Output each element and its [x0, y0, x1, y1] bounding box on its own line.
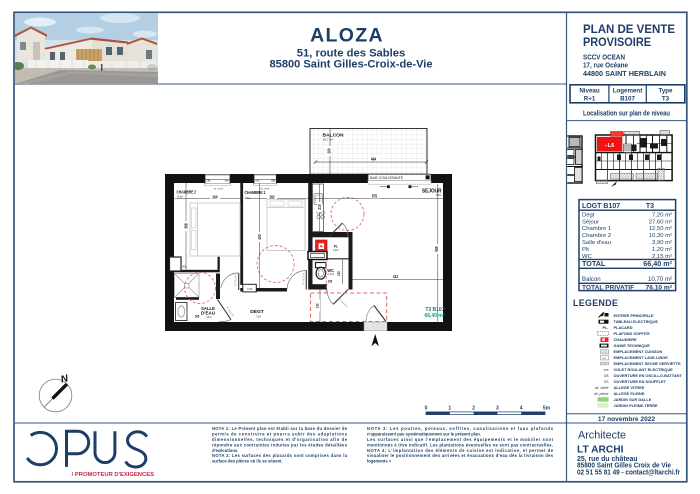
svg-text:JARDIN SUR DALLE: JARDIN SUR DALLE [614, 397, 652, 402]
svg-text:260: 260 [212, 194, 218, 199]
svg-text:66,40 m²: 66,40 m² [643, 259, 672, 268]
svg-text:156: 156 [328, 279, 333, 283]
svg-text:132: 132 [315, 303, 319, 308]
svg-text:EMPLACEMENT SECHE SERVIETTE: EMPLACEMENT SECHE SERVIETTE [614, 361, 682, 366]
svg-text:T3: T3 [662, 96, 670, 103]
svg-text:Chambre 2: Chambre 2 [582, 233, 611, 239]
svg-text:ALOZA: ALOZA [310, 25, 384, 47]
svg-text:/ PROMOTEUR D'EXIGENCES: / PROMOTEUR D'EXIGENCES [72, 472, 155, 478]
svg-text:Type: Type [659, 88, 674, 95]
svg-text:282: 282 [269, 194, 275, 199]
svg-text:all. vitrée: all. vitrée [214, 186, 224, 190]
svg-text:Localisation sur plan de nivea: Localisation sur plan de niveau [583, 108, 670, 117]
svg-text:vre: vre [225, 178, 229, 182]
svg-text:ALLEGE PLEINE: ALLEGE PLEINE [614, 391, 645, 396]
svg-text:NOTA 1: Le Présent plan est ét: NOTA 1: Le Présent plan est établi sur l… [212, 426, 348, 431]
svg-text:CHAMBRE 1: CHAMBRE 1 [245, 190, 266, 195]
svg-text:SCCV OCEAN: SCCV OCEAN [583, 55, 625, 62]
svg-text:Niveau: Niveau [579, 88, 600, 95]
svg-text:T3 B107: T3 B107 [425, 307, 444, 313]
svg-text:10,7 m²: 10,7 m² [323, 138, 334, 142]
svg-text:LEGENDE: LEGENDE [573, 298, 618, 308]
svg-text:VOLET ROULANT ELECTRIQUE: VOLET ROULANT ELECTRIQUE [614, 367, 674, 372]
svg-text:135: 135 [337, 271, 341, 276]
svg-text:12,5m²: 12,5m² [245, 196, 251, 200]
svg-text:185: 185 [195, 315, 200, 319]
svg-text:450: 450 [257, 234, 262, 240]
svg-text:17 novembre 2022: 17 novembre 2022 [598, 416, 656, 423]
svg-text:CVB: CVB [247, 287, 253, 291]
svg-text:3,90 m²: 3,90 m² [652, 240, 672, 246]
svg-text:n'apparaissent pas systématiqu: n'apparaissent pas systématiquement sur … [367, 431, 481, 436]
svg-text:10,3m²: 10,3m² [177, 195, 183, 199]
svg-text:OB: OB [604, 374, 610, 378]
svg-text:PP 80/204: PP 80/204 [302, 272, 306, 285]
svg-text:logements »: logements » [367, 459, 392, 464]
svg-text:vre: vre [604, 368, 609, 372]
svg-text:51, route des Sables: 51, route des Sables [297, 47, 406, 59]
svg-text:3: 3 [496, 406, 499, 412]
svg-text:Chambre 1: Chambre 1 [582, 226, 611, 232]
svg-text:LT ARCHI: LT ARCHI [577, 445, 624, 456]
svg-text:368: 368 [183, 223, 188, 229]
svg-text:Dégt: Dégt [582, 212, 595, 218]
svg-text:⌐L6: ⌐L6 [605, 143, 614, 149]
svg-text:10,30 m²: 10,30 m² [649, 233, 672, 239]
svg-text:10,70 m²: 10,70 m² [648, 276, 672, 283]
svg-text:3,9m²: 3,9m² [206, 315, 211, 319]
svg-text:ALLEGE VITREE: ALLEGE VITREE [614, 385, 645, 390]
svg-text:R+1: R+1 [584, 96, 596, 103]
svg-text:Architecte: Architecte [578, 430, 626, 442]
svg-text:85800 Saint Gilles-Croix-de-Vi: 85800 Saint Gilles-Croix-de-Vie [270, 59, 433, 71]
svg-text:TABLEAU ELECTRIQUE: TABLEAU ELECTRIQUE [614, 319, 659, 324]
svg-text:27,60 m²: 27,60 m² [649, 219, 672, 225]
svg-text:OB: OB [271, 178, 275, 182]
svg-text:Séjour: Séjour [582, 219, 599, 225]
svg-text:LOGT B107: LOGT B107 [582, 203, 620, 210]
svg-text:4: 4 [520, 406, 523, 412]
svg-text:7,2m²: 7,2m² [256, 314, 261, 318]
svg-text:d'exécutions.: d'exécutions. [212, 448, 238, 453]
svg-text:494: 494 [371, 157, 377, 162]
svg-text:NOTA 4: L'implantation des: NOTA 4: L'implantation des éléments de c… [367, 448, 554, 453]
svg-text:OUVERTURE EN OSCILLO-BATTANT: OUVERTURE EN OSCILLO-BATTANT [614, 373, 683, 378]
svg-text:1: 1 [448, 406, 451, 412]
svg-text:EMPLACEMENT LAVE-LINGE: EMPLACEMENT LAVE-LINGE [614, 355, 669, 360]
svg-text:Les surfaces ainsi que l'e: Les surfaces ainsi que l'emplacement des… [367, 437, 554, 442]
svg-text:76,10 m²: 76,10 m² [646, 285, 673, 292]
svg-text:NOTA 2: Les surfaces des placa: NOTA 2: Les surfaces des placards sont c… [212, 453, 348, 458]
svg-text:OS: OS [604, 380, 610, 384]
svg-text:Logement: Logement [613, 88, 643, 95]
svg-text:visualiser le positionnement: visualiser le positionnement des arrivée… [367, 453, 554, 458]
svg-text:TOTAL: TOTAL [582, 259, 606, 268]
svg-text:permis de construire et po: permis de construire et pourra subir des… [212, 431, 348, 436]
svg-text:mentionnés à titre indicatif.: mentionnés à titre indicatif. Les planta… [367, 442, 553, 447]
svg-text:575: 575 [372, 194, 378, 199]
svg-text:PL.: PL. [183, 265, 188, 269]
svg-text:répondre aux contraintes indui: répondre aux contraintes induites par le… [212, 442, 348, 447]
svg-text:44800 SAINT HERBLAIN: 44800 SAINT HERBLAIN [583, 71, 666, 78]
svg-text:PP 90/204: PP 90/204 [233, 273, 237, 286]
svg-text:GAINE TECHNIQUE: GAINE TECHNIQUE [614, 343, 651, 348]
svg-text:all. pleine: all. pleine [594, 392, 608, 396]
svg-text:Salle d'eau: Salle d'eau [582, 240, 611, 246]
svg-text:all. vitrée: all. vitrée [595, 386, 609, 390]
svg-text:NOTA 3: Les poutres, potea: NOTA 3: Les poutres, poteaux, soffites, … [367, 426, 554, 431]
svg-text:LL: LL [603, 356, 607, 360]
svg-text:dimensionnelles, techniques: dimensionnelles, techniques et d'organis… [212, 437, 348, 442]
svg-text:CHAUDIERE: CHAUDIERE [614, 337, 638, 342]
svg-text:Balcon: Balcon [582, 276, 601, 283]
svg-text:5m: 5m [543, 406, 551, 412]
svg-text:413: 413 [393, 274, 399, 279]
svg-text:17, rue Océane: 17, rue Océane [583, 63, 628, 70]
svg-text:2,1m²: 2,1m² [327, 272, 334, 276]
svg-text:66,40 m²: 66,40 m² [424, 313, 444, 319]
svg-text:OUVERTURE EN SOUFFLET: OUVERTURE EN SOUFFLET [614, 379, 667, 384]
svg-text:02 51 55 81 49 - contact@ltarc: 02 51 55 81 49 - contact@ltarchi.fr [577, 469, 680, 476]
svg-text:BAIE COULISSANTE: BAIE COULISSANTE [370, 176, 404, 180]
svg-text:1,20 m²: 1,20 m² [652, 247, 672, 253]
svg-text:PLAN DE VENTE: PLAN DE VENTE [583, 22, 675, 36]
svg-text:2: 2 [472, 406, 475, 412]
svg-text:260: 260 [326, 148, 331, 154]
svg-text:PLACARD: PLACARD [614, 325, 633, 330]
svg-text:TOTAL PRIVATIF: TOTAL PRIVATIF [582, 285, 634, 292]
svg-text:PROVISOIRE: PROVISOIRE [583, 35, 651, 49]
svg-text:12,50 m²: 12,50 m² [649, 226, 672, 232]
svg-text:27,6m²: 27,6m² [436, 193, 442, 197]
svg-text:0: 0 [425, 406, 428, 412]
svg-text:T3: T3 [646, 203, 654, 210]
svg-text:PLAFOND SOFFITE: PLAFOND SOFFITE [614, 331, 651, 336]
svg-text:JARDIN PLEINE-TERRE: JARDIN PLEINE-TERRE [614, 403, 659, 408]
svg-text:Plt: Plt [582, 247, 589, 253]
svg-text:ENTREE PRINCIPALE: ENTREE PRINCIPALE [614, 313, 655, 318]
svg-text:B107: B107 [620, 96, 635, 103]
svg-text:1,2m²: 1,2m² [333, 248, 339, 252]
svg-text:vre: vre [255, 178, 259, 182]
svg-text:surface des pièces où ils se s: surface des pièces où ils se situent. [212, 459, 283, 464]
svg-text:7,20 m²: 7,20 m² [652, 212, 672, 218]
svg-text:585: 585 [434, 246, 439, 252]
svg-text:210: 210 [317, 204, 322, 210]
svg-text:EMPLACEMENT CUISSON: EMPLACEMENT CUISSON [614, 349, 663, 354]
svg-text:PL.: PL. [602, 325, 608, 330]
svg-text:OB: OB [206, 178, 210, 182]
